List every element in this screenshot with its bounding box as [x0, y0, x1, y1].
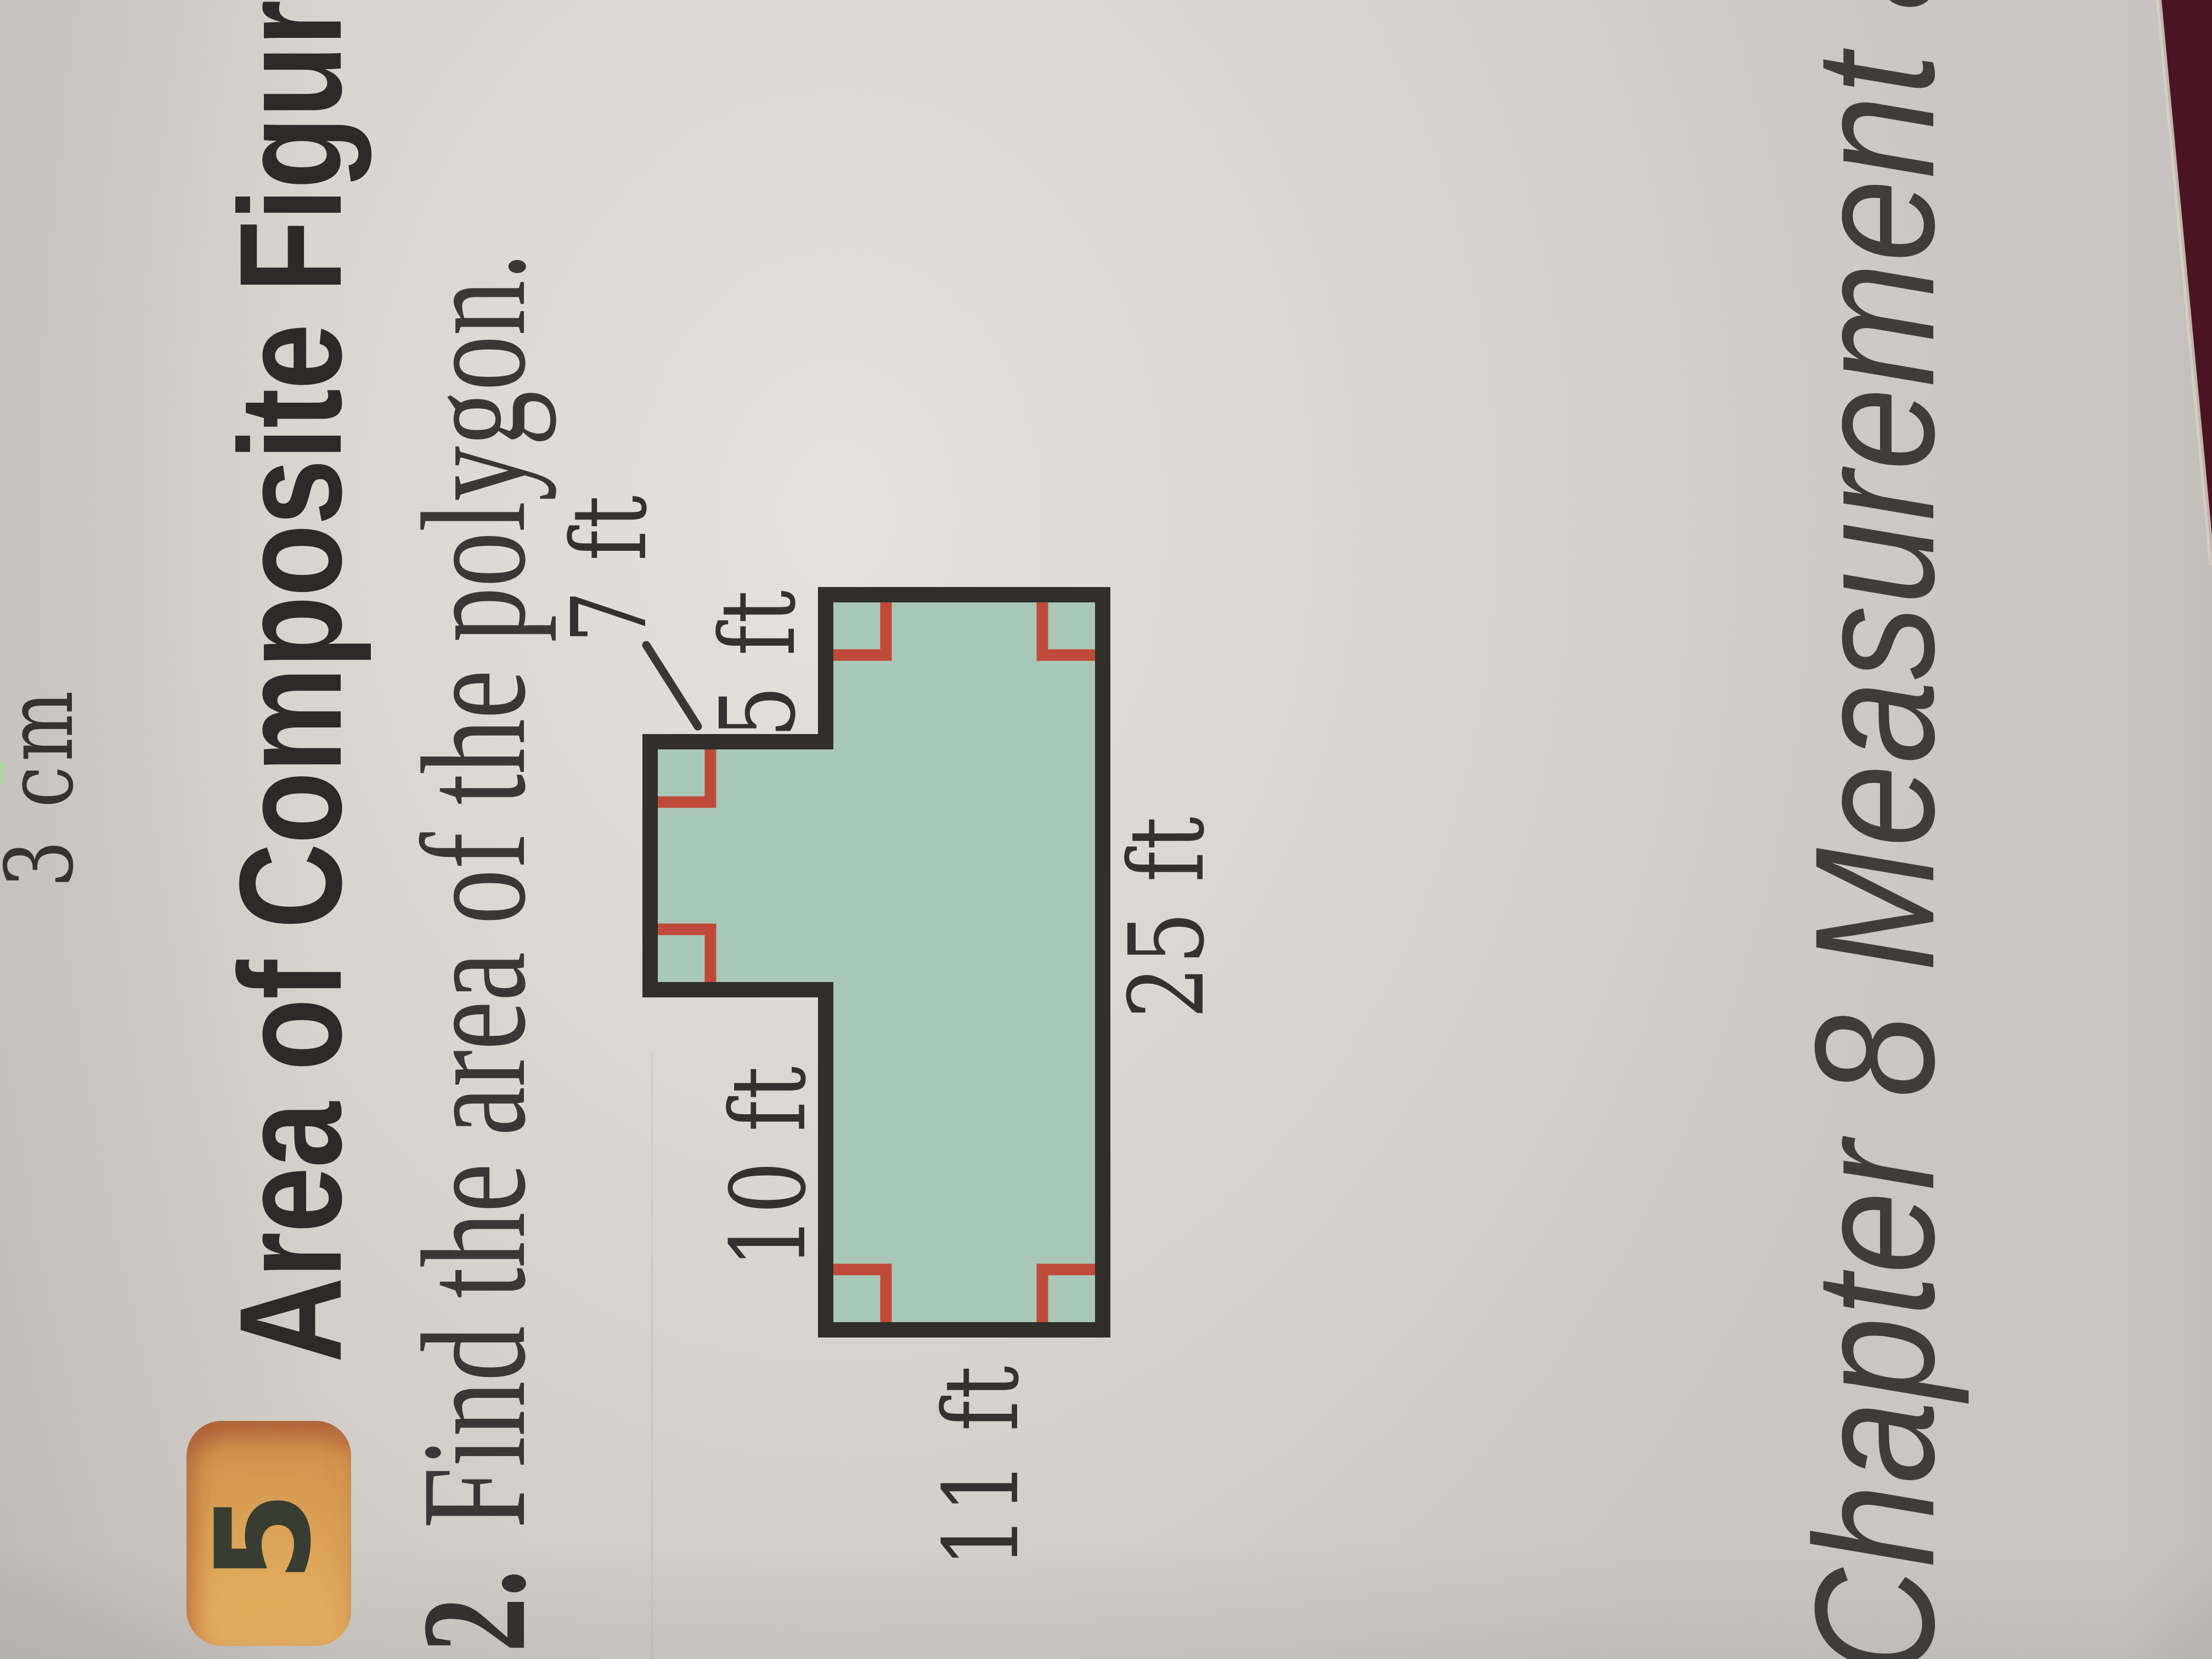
textbook-photo: 3 cm 5 Area of Composite Figure 2. Find …: [0, 0, 2212, 1659]
table-surface-wedge: [0, 0, 2212, 1659]
